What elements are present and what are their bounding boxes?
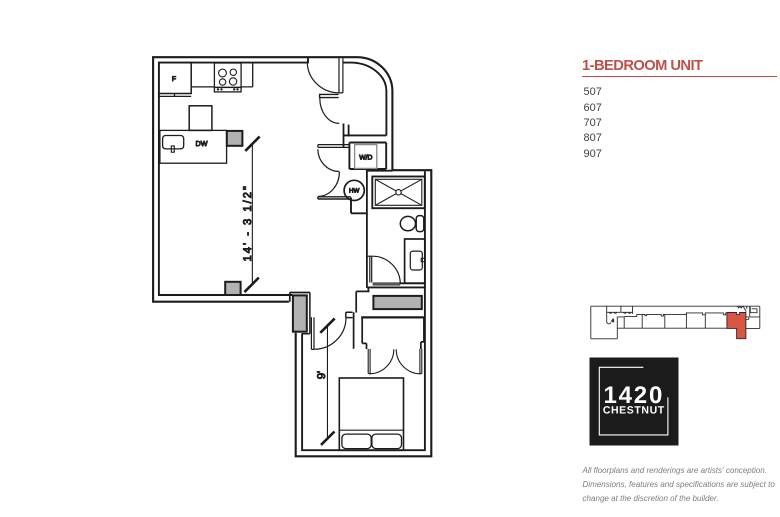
svg-text:CHESTNUT: CHESTNUT (603, 405, 665, 417)
svg-text:14' - 3 1/2": 14' - 3 1/2" (242, 184, 254, 261)
svg-text:F: F (172, 76, 176, 83)
svg-text:4: 4 (612, 318, 615, 323)
svg-text:W/D: W/D (359, 155, 372, 162)
svg-text:9': 9' (316, 371, 328, 379)
svg-text:DW: DW (196, 139, 208, 148)
svg-text:HW: HW (349, 188, 359, 195)
